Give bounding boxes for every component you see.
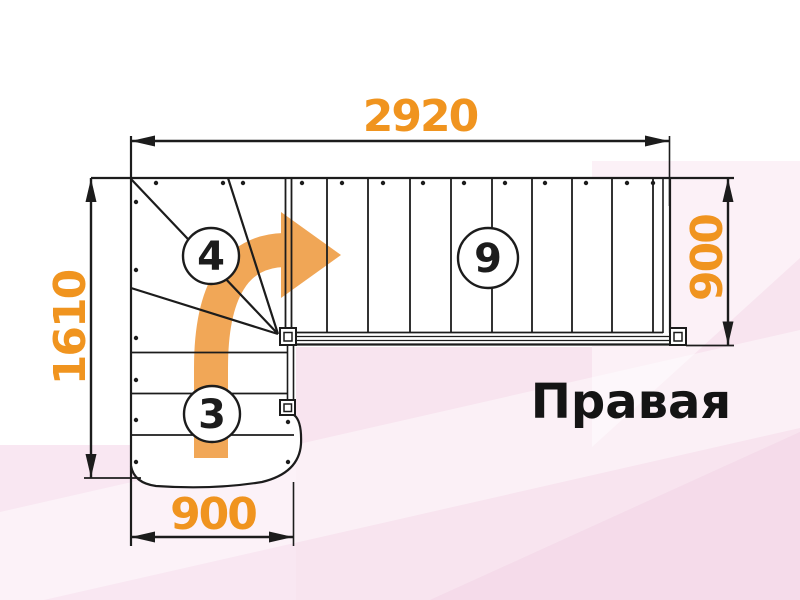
step-count-lower: 3 [184, 386, 240, 442]
stair-plan-diagram: 4 9 3 2920 1610 900 900 П [0, 0, 800, 600]
corner-newel-post-inner [284, 333, 292, 342]
upper-step-count: 9 [474, 236, 502, 282]
dimension-right-value: 900 [682, 215, 733, 301]
dimension-top-value: 2920 [363, 91, 478, 142]
page-title: Правая [531, 374, 732, 430]
dimension-bottom-value: 900 [170, 489, 256, 540]
dimension-left-value: 1610 [45, 270, 96, 385]
step-count-upper: 9 [458, 228, 518, 288]
right-newel-post-inner [674, 333, 682, 342]
stair-plan-page: 4 9 3 2920 1610 900 900 П [0, 0, 800, 600]
winder-step-count: 4 [197, 234, 225, 280]
step-count-winder: 4 [183, 228, 239, 284]
lower-newel-post-inner [284, 404, 292, 412]
lower-step-count: 3 [198, 392, 226, 438]
